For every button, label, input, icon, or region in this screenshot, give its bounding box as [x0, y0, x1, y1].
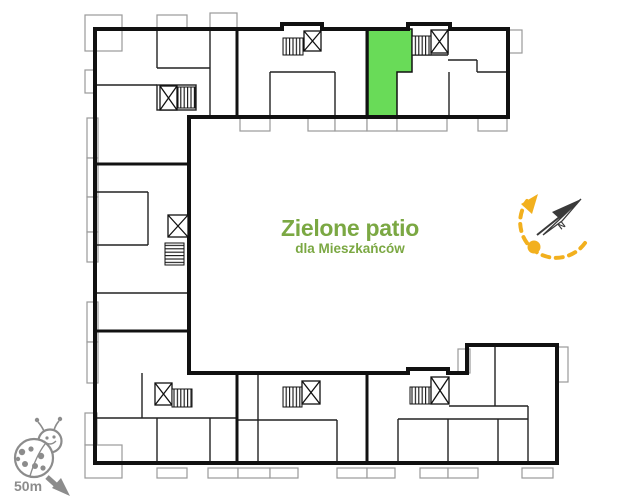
patio-subtitle: dla Mieszkańców: [295, 241, 405, 256]
patio-title: Zielone patio: [281, 215, 419, 241]
staircase-icon: [155, 383, 192, 407]
north-label: N: [556, 220, 567, 232]
staircase-icon: [283, 381, 320, 407]
ladybug-scale-icon: 50m: [14, 417, 70, 496]
scale-label: 50m: [14, 478, 42, 494]
staircase-icon: [283, 31, 321, 55]
staircase-icon: [160, 86, 195, 110]
site-plan: Zielone patio dla Mieszkańców N 50m: [0, 0, 630, 500]
staircase-icon: [410, 377, 449, 404]
staircase-icon: [412, 30, 448, 55]
highlighted-unit[interactable]: [368, 29, 412, 116]
north-arrow-icon: N: [520, 194, 585, 258]
scale-direction-arrow-icon: [47, 477, 70, 496]
compass-dot: [528, 241, 541, 254]
staircase-icon: [165, 215, 188, 265]
floor-plan-page: Zielone patio dla Mieszkańców N 50m: [0, 0, 630, 500]
